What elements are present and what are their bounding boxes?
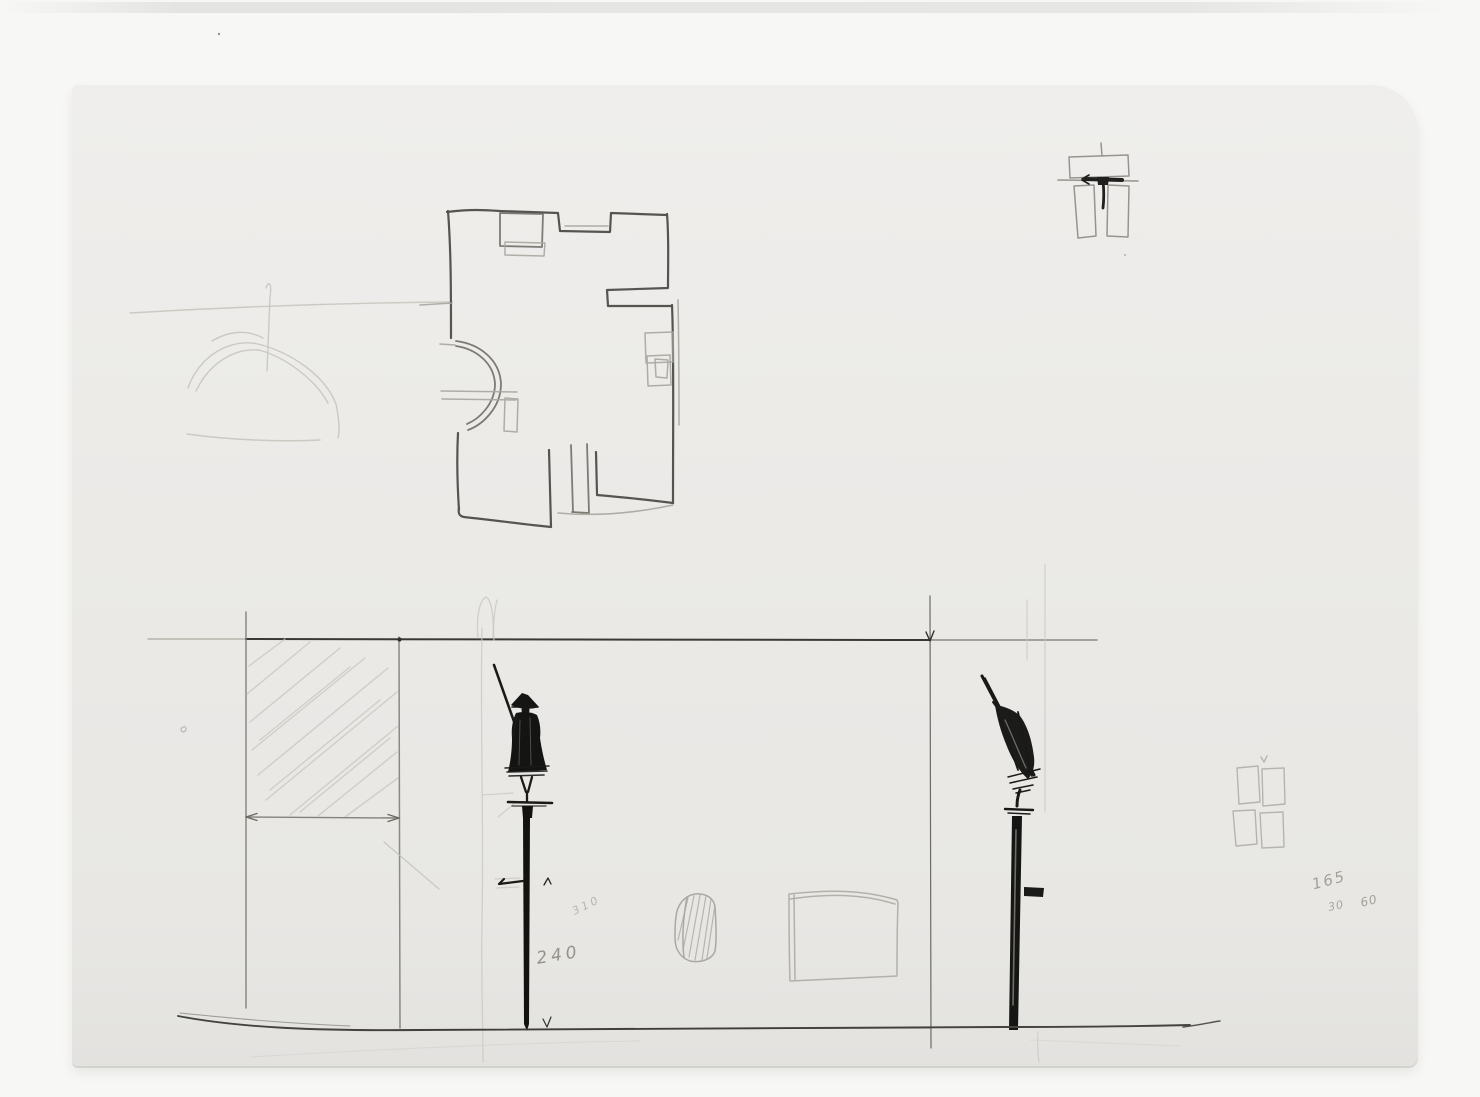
ground-echo-start — [180, 1013, 350, 1026]
ground-main — [178, 1016, 1190, 1030]
plan-right-notch — [607, 214, 672, 306]
guide-vertical — [481, 628, 483, 1062]
speck — [1124, 254, 1126, 256]
pencil-marks-layer — [0, 0, 1480, 1097]
plan-entry-guides — [420, 303, 455, 345]
caret-up-mark — [544, 878, 551, 885]
detail-left-rect — [1074, 185, 1096, 238]
pedestal-rect-sketch — [789, 891, 898, 981]
figure-2-sketch — [982, 676, 1044, 1062]
base-knob — [522, 806, 533, 818]
window-grid-sketch — [1233, 756, 1285, 848]
speck — [218, 33, 220, 35]
detail-tick — [1101, 143, 1102, 156]
faint-below-line — [250, 1041, 640, 1057]
dome-base-line — [187, 434, 320, 441]
guide-vertical-short — [494, 600, 497, 640]
plan-threshold-rect — [504, 398, 518, 432]
grid-rect-1 — [1237, 766, 1260, 804]
grid-tick-mark — [1261, 756, 1267, 762]
plan-detail-sketch — [1058, 143, 1138, 238]
grid-rect-3 — [1233, 810, 1257, 846]
base-cross — [508, 802, 552, 803]
body — [508, 712, 547, 772]
plan-bottom-left-wall — [459, 508, 551, 527]
faint-below-line-2 — [1030, 1040, 1180, 1046]
guide-below-ground — [1038, 1032, 1039, 1062]
dome-top-arc — [212, 332, 263, 341]
vertical-3 — [930, 596, 931, 1048]
plan-outer-guide — [678, 300, 679, 425]
base-cross — [1005, 809, 1033, 810]
ground-line — [178, 1013, 1220, 1057]
vertical-2 — [399, 637, 400, 1028]
plan-closet-rect-2 — [505, 242, 545, 256]
panel-bottom-line — [246, 817, 399, 818]
grid-rect-2 — [1262, 768, 1285, 806]
pole — [523, 818, 530, 1024]
detail-top-rect — [1069, 155, 1129, 178]
detail-drip — [1103, 181, 1104, 208]
ground-end-flick — [1183, 1021, 1220, 1027]
guide-line — [130, 302, 452, 313]
caret-down-mark — [543, 1017, 551, 1027]
pedestal-double-lines — [790, 895, 895, 980]
dome-outline-inner — [196, 350, 328, 403]
legs — [521, 777, 532, 801]
guide-marks — [482, 793, 515, 817]
fringe — [1008, 769, 1040, 793]
dome-outline — [188, 343, 339, 438]
guide-line — [266, 284, 271, 371]
figure-1-sketch — [481, 600, 552, 1062]
pole-tab — [1024, 887, 1044, 897]
plan-bottom-right-wall — [597, 495, 673, 503]
floor-plan-sketch — [420, 210, 679, 527]
vertical-2-dot — [397, 637, 401, 641]
plan-right-rect-1 — [645, 332, 673, 363]
pole-tick — [499, 879, 523, 884]
elevation-frame — [148, 565, 1097, 1048]
tiny-scribble — [181, 727, 186, 732]
detail-node — [1097, 177, 1109, 185]
plan-left-wall-upper — [448, 211, 451, 338]
base-cross-2 — [1008, 813, 1030, 814]
pedestal-outline — [789, 891, 898, 981]
detail-right-rect — [1107, 185, 1129, 237]
dome-sketch — [130, 284, 452, 441]
stone-sketch — [675, 894, 716, 962]
top-line-main — [246, 639, 930, 640]
plan-left-wall-lower — [457, 433, 459, 510]
hatch-lines — [247, 639, 398, 817]
hatched-panel — [181, 639, 439, 889]
plan-door-leaf — [571, 444, 589, 513]
scanned-drawing: 310 240 165 30 60 — [0, 0, 1480, 1097]
grid-rect-4 — [1260, 812, 1284, 848]
light-loop-above-line — [477, 597, 493, 638]
stray-diagonal — [384, 842, 439, 889]
paper-specks — [218, 33, 1126, 256]
plan-top-wall — [447, 210, 667, 232]
